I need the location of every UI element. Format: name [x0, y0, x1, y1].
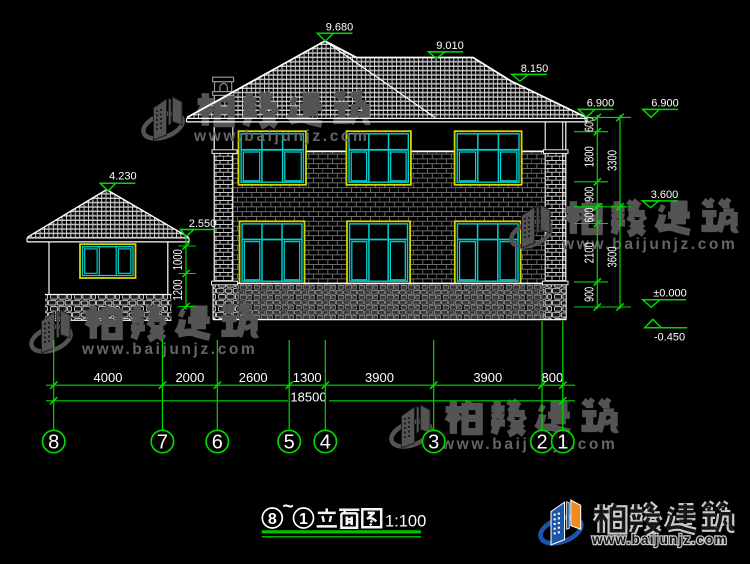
svg-text:8: 8 — [268, 511, 277, 528]
svg-text:1800: 1800 — [582, 146, 597, 167]
svg-text:4: 4 — [320, 432, 331, 454]
svg-text:600: 600 — [582, 208, 597, 223]
svg-text:900: 900 — [582, 287, 597, 302]
svg-text:6.900: 6.900 — [587, 98, 615, 110]
svg-text:3900: 3900 — [365, 370, 394, 385]
svg-text:~: ~ — [282, 497, 293, 518]
svg-text:2: 2 — [536, 432, 547, 454]
svg-text:7: 7 — [157, 432, 168, 454]
svg-text:5: 5 — [284, 432, 295, 454]
svg-text:1:100: 1:100 — [385, 513, 426, 531]
svg-text:9.680: 9.680 — [326, 22, 354, 34]
svg-text:4000: 4000 — [94, 370, 123, 385]
svg-text:600: 600 — [582, 117, 597, 132]
svg-text:3.600: 3.600 — [651, 189, 679, 201]
svg-text:2.550: 2.550 — [189, 218, 217, 230]
svg-text:1: 1 — [557, 432, 568, 454]
svg-text:1300: 1300 — [293, 370, 322, 385]
svg-text:800: 800 — [542, 370, 564, 385]
svg-text:±0.000: ±0.000 — [653, 288, 687, 300]
svg-text:1: 1 — [299, 511, 308, 528]
svg-text:6.900: 6.900 — [651, 98, 679, 110]
svg-text:8: 8 — [48, 432, 59, 454]
svg-text:2600: 2600 — [239, 370, 268, 385]
svg-text:3: 3 — [428, 432, 439, 454]
svg-text:18500: 18500 — [290, 390, 326, 405]
svg-text:4.230: 4.230 — [109, 171, 137, 183]
svg-text:1200: 1200 — [170, 280, 185, 301]
svg-text:www.baijunjz.com: www.baijunjz.com — [591, 532, 728, 547]
svg-text:-0.450: -0.450 — [654, 331, 685, 343]
svg-text:6: 6 — [212, 432, 223, 454]
svg-text:8.150: 8.150 — [521, 63, 549, 75]
svg-text:1000: 1000 — [170, 249, 185, 270]
svg-text:3600: 3600 — [605, 247, 620, 268]
svg-text:3300: 3300 — [605, 150, 620, 171]
svg-text:3900: 3900 — [473, 370, 502, 385]
svg-text:9.010: 9.010 — [436, 40, 464, 52]
svg-text:2000: 2000 — [175, 370, 204, 385]
svg-text:2100: 2100 — [582, 242, 597, 263]
svg-text:900: 900 — [582, 187, 597, 202]
